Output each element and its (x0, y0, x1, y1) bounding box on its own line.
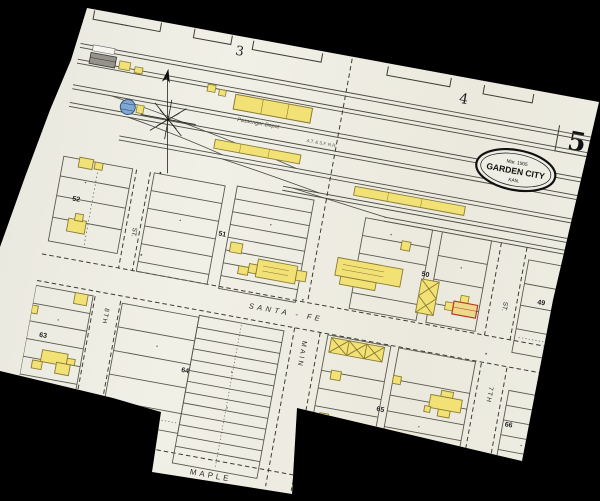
church-building (423, 388, 463, 420)
street-label-8th: 8TH (100, 307, 110, 325)
block-label-64: 64 (181, 367, 190, 375)
trackside-buildings (88, 45, 231, 97)
sheet-number-3: 3 (234, 44, 245, 60)
street-label-st-ne: ST. (500, 301, 509, 312)
sheet-number-5: 5 (565, 126, 588, 159)
passenger-depot: Passenger Depot (231, 94, 313, 136)
block-51-grid-west (136, 173, 225, 284)
block-52-grid (48, 156, 132, 253)
block-label-51: 51 (218, 230, 227, 238)
block-49-grid (512, 260, 580, 362)
scan-background: 3 4 5 A.T. & S.F. R.R. (0, 0, 600, 501)
brick-building (444, 293, 479, 318)
block-label-52: 52 (72, 196, 81, 204)
block-label-65: 65 (376, 406, 385, 414)
block-label-50: 50 (421, 271, 430, 279)
street-label-main: MAIN (296, 340, 308, 368)
street-label-st-nw: ST. (129, 227, 138, 238)
livery-x-building (329, 338, 385, 363)
block-label-63: 63 (39, 332, 48, 340)
sheet-number-4: 4 (458, 91, 470, 108)
block-66-grid (492, 390, 556, 491)
sheet-edge-brackets (85, 10, 600, 158)
publisher-stamp: Mar. 1905 GARDEN CITY KAN. (473, 143, 559, 197)
railroad-siding-2 (282, 186, 585, 245)
street-label-santa-fe: SANTA - FE (248, 301, 324, 323)
block-label-66: 66 (504, 421, 513, 429)
barn-x-building (415, 279, 439, 316)
map-svg: 3 4 5 A.T. & S.F. R.R. (2, 8, 600, 501)
street-label-7th: 7TH (484, 386, 494, 404)
map-content: 3 4 5 A.T. & S.F. R.R. (2, 8, 600, 501)
block-63-buildings (21, 285, 88, 376)
map-sheet: 3 4 5 A.T. & S.F. R.R. (0, 0, 600, 501)
block-label-49: 49 (537, 299, 546, 307)
block-65-grid-east (376, 348, 475, 486)
